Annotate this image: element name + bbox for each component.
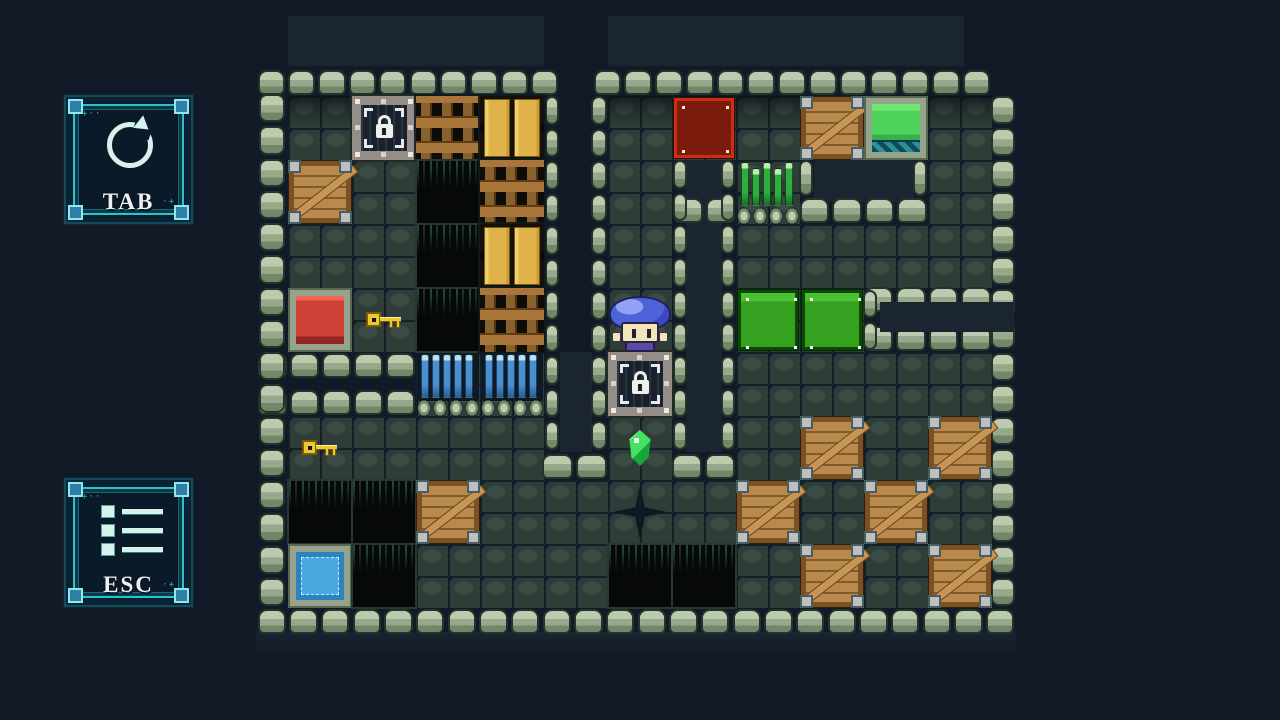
wall-bump bbox=[349, 70, 376, 95]
crate-tile bbox=[417, 481, 479, 543]
wall-bump bbox=[606, 609, 635, 634]
red-plate-tile bbox=[288, 288, 352, 352]
wall-bump bbox=[624, 70, 652, 95]
wall-bump bbox=[501, 70, 528, 95]
wall-bump bbox=[991, 514, 1015, 542]
wall-bump bbox=[479, 609, 508, 634]
crate-tile bbox=[801, 417, 863, 479]
wall-bump bbox=[932, 70, 960, 95]
lock-tile bbox=[608, 352, 672, 416]
wall-bump bbox=[800, 198, 830, 223]
pit-tile bbox=[417, 289, 479, 351]
restart-icon bbox=[107, 122, 153, 168]
wall-bump bbox=[901, 70, 929, 95]
wall-bump bbox=[991, 449, 1015, 477]
wall-bump bbox=[259, 449, 285, 477]
crate-tile bbox=[801, 97, 863, 159]
wall-bump bbox=[721, 421, 735, 450]
wall-bump bbox=[673, 389, 687, 418]
orange-door-tile bbox=[480, 96, 544, 160]
red-goal-tile bbox=[674, 98, 734, 158]
wall-bump bbox=[259, 126, 285, 154]
green-block-tile bbox=[738, 290, 798, 350]
wall-bump bbox=[591, 389, 607, 418]
wall-bump bbox=[991, 192, 1015, 220]
wall-bump bbox=[686, 70, 714, 95]
wall-bump bbox=[991, 225, 1015, 253]
wall bbox=[912, 158, 928, 198]
wall-bump bbox=[543, 609, 572, 634]
lock-tile bbox=[352, 96, 416, 160]
floor-region bbox=[608, 96, 672, 480]
tab-restart-button[interactable]: +·· ·+ TAB bbox=[64, 95, 193, 224]
pit-tile bbox=[289, 481, 351, 543]
crate-tile bbox=[929, 545, 991, 607]
wooden-lattice-tile bbox=[416, 96, 480, 160]
corner-decoration bbox=[174, 99, 189, 114]
wall bbox=[256, 64, 560, 96]
wall-bump bbox=[545, 389, 559, 418]
wall-bump bbox=[721, 193, 735, 222]
wall-bump bbox=[764, 609, 793, 634]
wall-bump bbox=[511, 609, 540, 634]
wall-bump bbox=[913, 160, 927, 196]
esc-button-label: ESC bbox=[66, 572, 191, 598]
wall-bump bbox=[591, 324, 607, 353]
wall-bump bbox=[531, 70, 558, 95]
wall-bump bbox=[705, 454, 735, 479]
wall-bump bbox=[318, 70, 345, 95]
wall-bump bbox=[416, 609, 445, 634]
wall-bump bbox=[863, 322, 877, 350]
wall-bump bbox=[545, 291, 559, 320]
wall-bump bbox=[673, 160, 687, 189]
rune-decoration: +·· bbox=[82, 492, 101, 502]
wall-bump bbox=[288, 70, 315, 95]
wall-bump bbox=[991, 385, 1015, 413]
wall-bump bbox=[954, 609, 983, 634]
wall bbox=[544, 94, 560, 452]
wall-bump bbox=[591, 129, 607, 158]
wall-bump bbox=[591, 421, 607, 450]
green-block-tile bbox=[802, 290, 862, 350]
wooden-lattice-tile bbox=[480, 288, 544, 352]
wall-bump bbox=[863, 290, 877, 318]
pit-tile bbox=[673, 545, 735, 607]
wall bbox=[798, 194, 928, 224]
wall bbox=[720, 158, 736, 452]
blue-spikes-tile bbox=[416, 352, 480, 418]
wall-bump bbox=[545, 324, 559, 353]
wall-bump bbox=[470, 70, 497, 95]
wall-bump bbox=[289, 609, 318, 634]
wall-bump bbox=[259, 223, 285, 251]
wall-bump bbox=[259, 578, 285, 606]
pit-tile bbox=[417, 225, 479, 287]
water-tile bbox=[288, 544, 352, 608]
key-item bbox=[366, 310, 406, 332]
wall-bump bbox=[991, 353, 1015, 381]
wall-bump bbox=[259, 546, 285, 574]
orange-door-tile bbox=[480, 224, 544, 288]
wall-bump bbox=[591, 226, 607, 255]
key-item bbox=[302, 438, 342, 460]
wall-bump bbox=[673, 225, 687, 254]
green-spikes-tile bbox=[736, 160, 800, 226]
wall bbox=[672, 158, 688, 452]
pit-tile bbox=[417, 161, 479, 223]
wall-bump bbox=[591, 291, 607, 320]
wall-bump bbox=[778, 70, 806, 95]
wall bbox=[258, 92, 286, 608]
pit-tile bbox=[353, 545, 415, 607]
menu-icon bbox=[101, 505, 163, 559]
wall-bump bbox=[386, 353, 415, 378]
wall bbox=[540, 450, 608, 480]
wall-bump bbox=[545, 96, 559, 125]
wall-bump bbox=[986, 609, 1015, 634]
wall-bump bbox=[865, 198, 895, 223]
wall bbox=[798, 158, 814, 198]
wall-bump bbox=[259, 94, 285, 122]
wall-bump bbox=[721, 258, 735, 287]
corner-decoration bbox=[68, 99, 83, 114]
game-screen: +·· ·+ TAB +·· ·+ ESC bbox=[0, 0, 1280, 720]
shadow-region bbox=[560, 352, 592, 452]
crate-tile bbox=[865, 481, 927, 543]
wall-bump bbox=[386, 390, 415, 415]
crate-tile bbox=[801, 545, 863, 607]
wall-bump bbox=[259, 513, 285, 541]
wall-bump bbox=[354, 353, 383, 378]
wall-bump bbox=[796, 609, 825, 634]
shadow-region bbox=[288, 16, 544, 66]
wall bbox=[670, 450, 736, 480]
wall-bump bbox=[258, 609, 287, 634]
shadow-region bbox=[608, 16, 964, 66]
wall-bump bbox=[440, 70, 467, 95]
wall-bump bbox=[594, 70, 622, 95]
wall bbox=[256, 608, 1016, 638]
wall-bump bbox=[809, 70, 837, 95]
wall-bump bbox=[717, 70, 745, 95]
wall-bump bbox=[733, 609, 762, 634]
wall-bump bbox=[963, 70, 991, 95]
wall-bump bbox=[799, 160, 813, 196]
wall bbox=[990, 94, 1016, 608]
wall-bump bbox=[290, 353, 319, 378]
wall-bump bbox=[991, 128, 1015, 156]
pit-tile bbox=[353, 481, 415, 543]
wall bbox=[862, 288, 878, 352]
wall-bump bbox=[673, 323, 687, 352]
wall-bump bbox=[259, 417, 285, 445]
wall-bump bbox=[673, 291, 687, 320]
wall-bump bbox=[991, 578, 1015, 606]
wall-bump bbox=[591, 259, 607, 288]
player-character bbox=[608, 296, 672, 356]
wall-bump bbox=[669, 609, 698, 634]
shadow-region bbox=[880, 302, 1014, 332]
wall-bump bbox=[591, 356, 607, 385]
wall-bump bbox=[991, 96, 1015, 124]
wall-bump bbox=[321, 609, 350, 634]
wall-bump bbox=[721, 291, 735, 320]
wall bbox=[592, 64, 992, 96]
wall-bump bbox=[721, 323, 735, 352]
wall-bump bbox=[259, 352, 285, 380]
tab-button-label: TAB bbox=[66, 189, 191, 215]
wall-bump bbox=[870, 70, 898, 95]
wall-bump bbox=[322, 390, 351, 415]
crate-tile bbox=[929, 417, 991, 479]
wall-bump bbox=[545, 226, 559, 255]
wall-bump bbox=[673, 356, 687, 385]
wall-bump bbox=[574, 609, 603, 634]
wall-bump bbox=[672, 454, 702, 479]
wall-bump bbox=[576, 454, 607, 479]
wall-bump bbox=[545, 259, 559, 288]
crate-tile bbox=[737, 481, 799, 543]
wall-bump bbox=[259, 159, 285, 187]
wall-bump bbox=[991, 257, 1015, 285]
wall-bump bbox=[259, 191, 285, 219]
corner-decoration bbox=[68, 482, 83, 497]
blue-spikes-tile bbox=[480, 352, 544, 418]
wall-bump bbox=[354, 390, 383, 415]
wall-bump bbox=[991, 417, 1015, 445]
wall bbox=[862, 330, 992, 352]
wall-bump bbox=[891, 609, 920, 634]
wall-bump bbox=[384, 609, 413, 634]
wall-bump bbox=[591, 96, 607, 125]
wall-bump bbox=[448, 609, 477, 634]
wall-bump bbox=[259, 255, 285, 283]
wall bbox=[590, 94, 608, 452]
wall-bump bbox=[353, 609, 382, 634]
wall-bump bbox=[410, 70, 437, 95]
wall-bump bbox=[545, 421, 559, 450]
wall-bump bbox=[545, 194, 559, 223]
wall-bump bbox=[828, 609, 857, 634]
wall-bump bbox=[832, 198, 862, 223]
wall-bump bbox=[673, 193, 687, 222]
wall-bump bbox=[638, 609, 667, 634]
wall-bump bbox=[545, 129, 559, 158]
wall-bump bbox=[991, 546, 1015, 574]
wall-bump bbox=[379, 70, 406, 95]
wall-bump bbox=[545, 161, 559, 190]
green-door-tile bbox=[864, 96, 928, 160]
wall-bump bbox=[721, 160, 735, 189]
wall-bump bbox=[991, 482, 1015, 510]
wall-bump bbox=[747, 70, 775, 95]
crate-tile bbox=[289, 161, 351, 223]
wall-bump bbox=[259, 288, 285, 316]
wall-bump bbox=[673, 421, 687, 450]
rune-decoration: +·· bbox=[82, 109, 101, 119]
wall-bump bbox=[591, 161, 607, 190]
wall-bump bbox=[259, 481, 285, 509]
wall-bump bbox=[259, 384, 285, 412]
wall-bump bbox=[290, 390, 319, 415]
wall-bump bbox=[322, 353, 351, 378]
cracked-hole-tile bbox=[608, 480, 672, 544]
pit-tile bbox=[609, 545, 671, 607]
wall-bump bbox=[897, 198, 927, 223]
corner-decoration bbox=[174, 482, 189, 497]
floor-region bbox=[736, 224, 992, 288]
wooden-lattice-tile bbox=[480, 160, 544, 224]
wall-bump bbox=[721, 356, 735, 385]
wall-bump bbox=[542, 454, 573, 479]
wall-bump bbox=[701, 609, 730, 634]
wall-bump bbox=[859, 609, 888, 634]
wall-bump bbox=[923, 609, 952, 634]
wall-bump bbox=[991, 160, 1015, 188]
wall-bump bbox=[721, 225, 735, 254]
wall-bump bbox=[259, 320, 285, 348]
esc-menu-button[interactable]: +·· ·+ ESC bbox=[64, 478, 193, 607]
wall-bump bbox=[545, 356, 559, 385]
wall-bump bbox=[840, 70, 868, 95]
wall-bump bbox=[591, 194, 607, 223]
wall-bump bbox=[655, 70, 683, 95]
wall-bump bbox=[721, 389, 735, 418]
wall-bump bbox=[673, 258, 687, 287]
